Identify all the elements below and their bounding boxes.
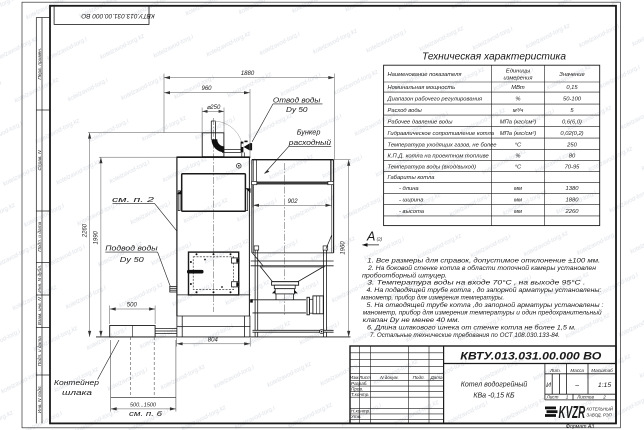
svg-text:KVZR: KVZR	[559, 403, 586, 423]
svg-text:Котел водогрейный: Котел водогрейный	[461, 381, 528, 389]
svg-text:2260: 2260	[565, 209, 580, 215]
svg-text:Гидравлическое сопротивление к: Гидравлическое сопротивление котла	[388, 131, 495, 137]
svg-text:КВТУ.013.031.00.000 ВО: КВТУ.013.031.00.000 ВО	[81, 12, 154, 19]
svg-text:1. Все размеры для справок, до: 1. Все размеры для справок, допустимое о…	[367, 256, 600, 264]
svg-text:Техническая характеристика: Техническая характеристика	[422, 52, 566, 63]
svg-text:0,15: 0,15	[566, 85, 578, 91]
svg-text:см. п. 6: см. п. 6	[129, 409, 162, 418]
svg-text:50-100: 50-100	[563, 97, 582, 103]
svg-text:Лист: Лист	[358, 375, 371, 380]
svg-text:м³/ч: м³/ч	[513, 108, 524, 114]
svg-text:- высота: - высота	[399, 209, 425, 215]
svg-text:2. На боковой стенке котла в о: 2. На боковой стенке котла в области топ…	[367, 264, 596, 272]
svg-text:Справ. N: Справ. N	[37, 150, 43, 171]
svg-text:Утв.: Утв.	[351, 414, 361, 419]
svg-text:Подвод воды: Подвод воды	[105, 243, 158, 252]
svg-text:шлака: шлака	[62, 388, 92, 397]
svg-text:⌀250: ⌀250	[207, 105, 221, 111]
svg-text:- ширина: - ширина	[399, 197, 424, 203]
svg-text:N докум.: N докум.	[380, 375, 399, 380]
svg-text:Диапазон рабочего регулировани: Диапазон рабочего регулирования	[387, 97, 483, 103]
svg-text:902: 902	[288, 199, 299, 205]
svg-text:Наименование показателя: Наименование показателя	[388, 72, 462, 78]
svg-text:Инв. N подл.: Инв. N подл.	[37, 385, 43, 413]
svg-text:Пров.: Пров.	[351, 387, 363, 392]
svg-text:1880: 1880	[566, 197, 580, 203]
svg-text:Дата: Дата	[429, 375, 443, 380]
svg-text:°С: °С	[515, 165, 522, 171]
svg-text:измерения: измерения	[503, 76, 532, 82]
svg-text:МВт: МВт	[511, 85, 525, 91]
svg-text:расходный: расходный	[288, 138, 332, 147]
svg-text:см. п. 2: см. п. 2	[112, 195, 155, 204]
svg-text:1880: 1880	[241, 71, 255, 77]
svg-text:Значение: Значение	[559, 72, 585, 78]
svg-text:5. На отводящей трубе котла ,д: 5. На отводящей трубе котла ,до запорной…	[367, 301, 604, 309]
svg-text:2260: 2260	[83, 223, 89, 238]
svg-text:1990: 1990	[93, 230, 99, 244]
svg-text:°С: °С	[515, 142, 522, 148]
svg-text:%: %	[515, 153, 520, 159]
svg-text:пробоотборный штуцер.: пробоотборный штуцер.	[362, 271, 447, 279]
svg-text:Т.контр.: Т.контр.	[351, 392, 370, 397]
svg-text:мм: мм	[514, 197, 522, 203]
svg-text:манометр, прибор для измерения: манометр, прибор для измерения температу…	[363, 309, 602, 317]
svg-text:0,6(6,0): 0,6(6,0)	[562, 119, 582, 125]
svg-text:1960: 1960	[341, 241, 347, 255]
svg-text:960: 960	[201, 86, 212, 92]
svg-text:А: А	[366, 229, 375, 243]
svg-text:МПа (кгс/см²): МПа (кгс/см²)	[500, 119, 537, 125]
svg-text:500: 500	[127, 303, 138, 309]
svg-text:Формат А3: Формат А3	[566, 424, 594, 430]
svg-text:Отвод воды: Отвод воды	[273, 96, 321, 105]
svg-text:Н.контр.: Н.контр.	[351, 409, 370, 414]
svg-text:мм: мм	[514, 209, 522, 215]
svg-text:1: 1	[566, 395, 569, 400]
svg-text:3. Температура воды на входе: 3. Температура воды на входе 70°С , на в…	[367, 279, 585, 287]
svg-text:4. На подводящей трубе котла ,: 4. На подводящей трубе котла , до запорн…	[367, 286, 602, 294]
svg-text:(2): (2)	[377, 237, 383, 242]
svg-text:Температура воды (вход/выход): Температура воды (вход/выход)	[388, 165, 477, 171]
svg-text:МПа (кгс/см²): МПа (кгс/см²)	[500, 131, 537, 137]
svg-text:1380: 1380	[566, 186, 580, 192]
svg-text:Расход воды: Расход воды	[388, 108, 423, 114]
svg-text:0,02(0,2): 0,02(0,2)	[560, 131, 583, 137]
svg-text:ЗАВОД. РЭП: ЗАВОД. РЭП	[587, 413, 613, 418]
svg-text:Перв. примен.: Перв. примен.	[37, 48, 43, 80]
svg-text:КВТУ.013.031.00.000 ВО: КВТУ.013.031.00.000 ВО	[460, 350, 601, 362]
svg-text:К.П.Д. котла на проектном топл: К.П.Д. котла на проектном топливе	[388, 153, 490, 159]
svg-text:70-95: 70-95	[565, 165, 581, 171]
svg-text:Листов: Листов	[576, 395, 594, 400]
svg-text:Подп. и дата: Подп. и дата	[37, 221, 43, 251]
svg-text:250: 250	[566, 142, 577, 148]
svg-text:Подп. и дата: Подп. и дата	[37, 336, 43, 366]
svg-text:Инв. N дубл.: Инв. N дубл.	[37, 265, 43, 293]
svg-text:804: 804	[208, 338, 219, 344]
svg-text:мм: мм	[514, 186, 522, 192]
svg-text:Температура уходящих газов, не: Температура уходящих газов, не более	[388, 142, 498, 148]
svg-text:Подп.: Подп.	[413, 375, 425, 380]
svg-text:- длина: - длина	[399, 186, 419, 192]
svg-text:Рабочее давление воды: Рабочее давление воды	[388, 119, 454, 125]
svg-text:Лист: Лист	[546, 395, 559, 400]
svg-text:И: И	[546, 382, 551, 389]
svg-text:Dy 50: Dy 50	[286, 105, 308, 114]
svg-text:манометр, прибор для измерения: манометр, прибор для измерения температу…	[361, 294, 504, 302]
svg-text:%: %	[515, 97, 520, 103]
svg-text:Масса: Масса	[570, 368, 584, 373]
svg-text:Номинальная мощность: Номинальная мощность	[388, 85, 456, 91]
svg-text:80: 80	[569, 153, 576, 159]
svg-text:1:15: 1:15	[598, 382, 611, 389]
svg-text:6. Длина шлакового шнека от ст: 6. Длина шлакового шнека от стенке котла…	[367, 324, 576, 332]
svg-text:КВа -0,15 КБ: КВа -0,15 КБ	[473, 393, 515, 400]
svg-text:клапан Dу не менее 40 мм.: клапан Dу не менее 40 мм.	[363, 317, 460, 324]
svg-text:Взам. инв. N: Взам. инв. N	[37, 297, 43, 325]
svg-text:Лит.: Лит.	[549, 368, 561, 373]
svg-text:Dy 50: Dy 50	[120, 255, 145, 264]
svg-text:Масштаб: Масштаб	[591, 368, 613, 373]
svg-text:7. Остальные технические требо: 7. Остальные технические требования по О…	[370, 331, 560, 339]
svg-text:2: 2	[602, 395, 606, 400]
svg-text:Разраб.: Разраб.	[351, 381, 368, 386]
svg-text:Единицы: Единицы	[506, 69, 531, 75]
svg-text:Контейнер: Контейнер	[54, 378, 99, 387]
svg-text:Габариты котла: Габариты котла	[388, 175, 436, 181]
svg-text:–: –	[574, 382, 579, 389]
svg-text:КОТЕЛЬНЫЙ: КОТЕЛЬНЫЙ	[587, 407, 613, 412]
svg-text:Бункер: Бункер	[297, 127, 321, 136]
svg-text:500...1500: 500...1500	[130, 403, 157, 409]
